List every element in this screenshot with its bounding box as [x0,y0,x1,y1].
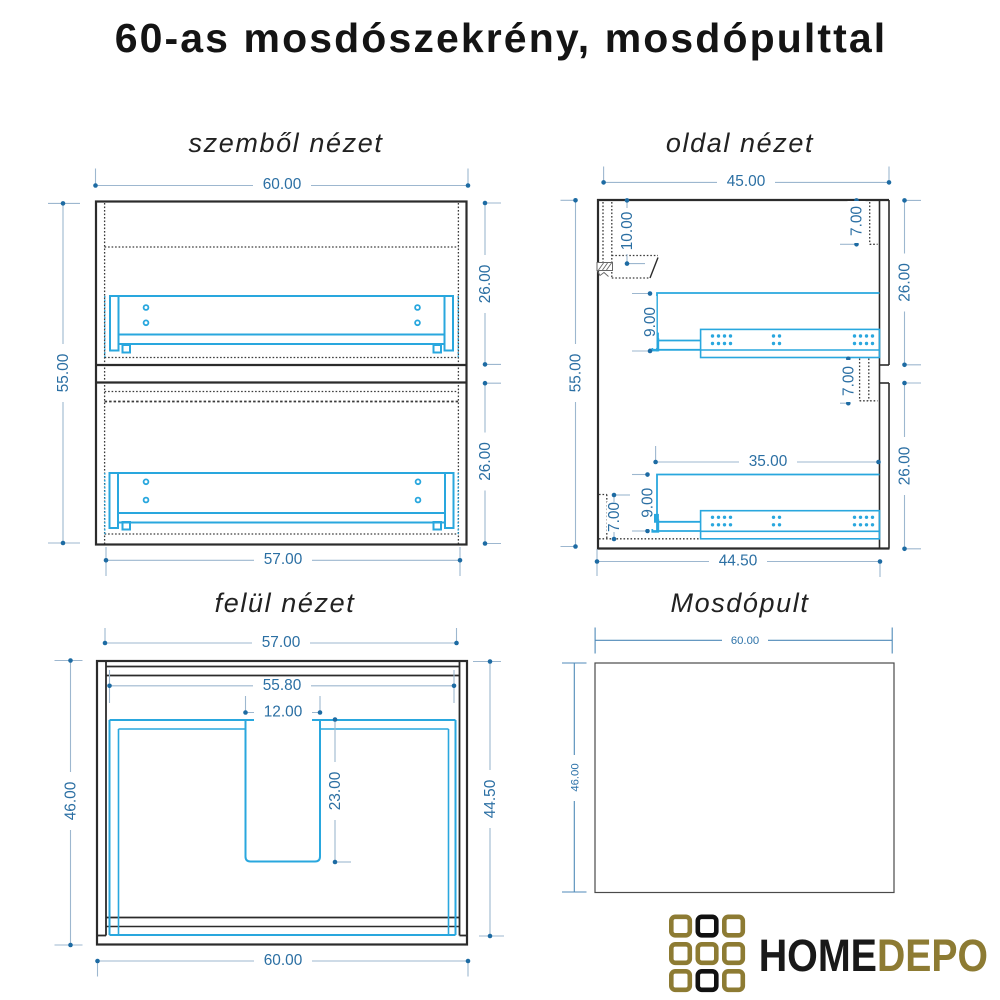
svg-text:DEPO: DEPO [877,930,988,981]
svg-text:44.50: 44.50 [482,780,499,819]
svg-text:7.00: 7.00 [841,366,858,396]
svg-text:7.00: 7.00 [849,206,866,236]
svg-text:60.00: 60.00 [263,176,302,193]
svg-text:44.50: 44.50 [719,552,758,569]
svg-text:12.00: 12.00 [264,703,303,720]
svg-text:55.80: 55.80 [263,677,302,694]
svg-text:57.00: 57.00 [262,634,301,651]
svg-text:szemből nézet: szemből nézet [189,128,384,158]
svg-text:Mosdópult: Mosdópult [671,588,810,618]
svg-text:9.00: 9.00 [642,307,659,337]
svg-text:7.00: 7.00 [606,502,623,532]
svg-text:55.00: 55.00 [568,354,585,393]
svg-text:26.00: 26.00 [897,447,914,486]
svg-text:60.00: 60.00 [731,635,759,647]
svg-text:23.00: 23.00 [327,772,344,811]
svg-text:57.00: 57.00 [264,551,303,568]
svg-text:46.00: 46.00 [569,763,581,791]
svg-text:26.00: 26.00 [477,442,494,481]
svg-text:HOME: HOME [759,930,877,981]
svg-text:26.00: 26.00 [897,263,914,302]
svg-text:45.00: 45.00 [727,173,766,190]
svg-text:35.00: 35.00 [749,453,788,470]
svg-text:60-as mosdószekrény, mosdópult: 60-as mosdószekrény, mosdópulttal [115,15,888,61]
svg-text:9.00: 9.00 [640,488,657,518]
svg-text:46.00: 46.00 [63,782,80,821]
svg-text:10.00: 10.00 [619,212,636,251]
svg-text:oldal nézet: oldal nézet [666,128,814,158]
svg-text:26.00: 26.00 [477,265,494,304]
svg-text:felül nézet: felül nézet [215,588,356,618]
svg-text:60.00: 60.00 [264,952,303,969]
svg-text:55.00: 55.00 [55,354,72,393]
